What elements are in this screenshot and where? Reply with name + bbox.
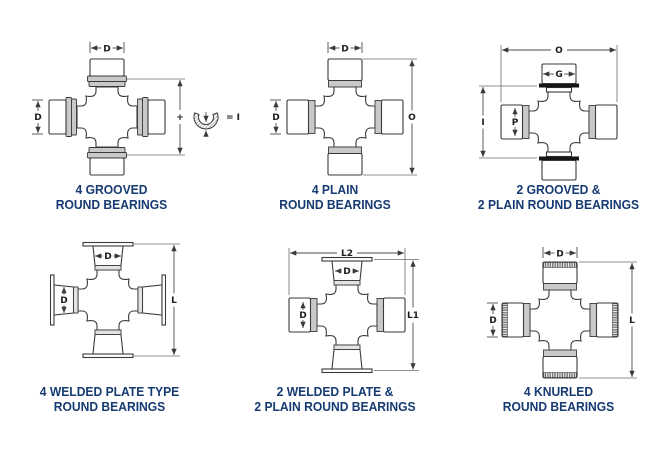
- snap-ring-icon: [194, 112, 218, 136]
- dim-label-d-top: D: [343, 267, 350, 277]
- dim-label-d-left: D: [272, 113, 279, 123]
- caption-4-plain: 4 PLAIN ROUND BEARINGS: [231, 182, 439, 212]
- dim-label-equals-i: = I: [226, 113, 240, 123]
- dim-label-d-left: D: [489, 316, 496, 326]
- caption-line: 4 WELDED PLATE TYPE: [8, 384, 212, 399]
- dim-label-l2-top: L2: [341, 249, 353, 259]
- dim-label-g-top: G: [555, 70, 562, 80]
- dim-label-d-left: D: [34, 113, 41, 123]
- diagram-4-welded-plate: D D L: [51, 243, 181, 358]
- caption-line: 2 PLAIN ROUND BEARINGS: [231, 399, 439, 414]
- caption-line: 2 PLAIN ROUND BEARINGS: [455, 197, 662, 212]
- dim-label-d-left: D: [60, 296, 67, 306]
- caption-line: ROUND BEARINGS: [8, 197, 215, 212]
- caption-line: 4 PLAIN: [231, 182, 439, 197]
- diagram-4-knurled: D D L: [487, 247, 637, 378]
- dim-label-o-top: O: [555, 46, 563, 56]
- caption-line: 2 WELDED PLATE &: [231, 384, 439, 399]
- diagram-canvas: D D + = I: [0, 0, 670, 450]
- caption-4-grooved: 4 GROOVED ROUND BEARINGS: [8, 182, 215, 212]
- dim-label-o-right: O: [408, 113, 416, 123]
- caption-line: 4 GROOVED: [8, 182, 215, 197]
- dim-label-p-left: P: [512, 118, 519, 128]
- dim-label-plus: +: [176, 113, 184, 123]
- dim-label-l-right: L: [171, 296, 177, 306]
- caption-4-welded-plate: 4 WELDED PLATE TYPE ROUND BEARINGS: [8, 384, 212, 414]
- dim-label-d-top: D: [341, 45, 348, 55]
- dim-label-d-top: D: [104, 252, 111, 262]
- dim-label-l-right: L: [629, 316, 635, 326]
- dim-label-i-left: I: [481, 118, 484, 128]
- dim-label-d-top: D: [103, 45, 110, 55]
- ujoint-bearing-types-chart: D D + = I: [0, 0, 670, 450]
- diagram-4-grooved: D D + = I: [32, 42, 240, 175]
- caption-2-welded-2-plain: 2 WELDED PLATE & 2 PLAIN ROUND BEARINGS: [231, 384, 439, 414]
- diagram-2-welded-2-plain: L2 D D L1: [289, 248, 419, 373]
- caption-2-grooved-2-plain: 2 GROOVED & 2 PLAIN ROUND BEARINGS: [455, 182, 662, 212]
- caption-line: ROUND BEARINGS: [8, 399, 212, 414]
- caption-line: 4 KNURLED: [455, 384, 662, 399]
- caption-line: ROUND BEARINGS: [455, 399, 662, 414]
- caption-line: 2 GROOVED &: [455, 182, 662, 197]
- dim-label-d-top: D: [556, 250, 563, 260]
- dim-label-l1-right: L1: [407, 311, 419, 321]
- caption-line: ROUND BEARINGS: [231, 197, 439, 212]
- caption-4-knurled: 4 KNURLED ROUND BEARINGS: [455, 384, 662, 414]
- diagram-4-plain: D D O: [270, 42, 417, 175]
- dim-label-d-left: D: [299, 311, 306, 321]
- diagram-2-grooved-2-plain: O G I P: [479, 45, 617, 180]
